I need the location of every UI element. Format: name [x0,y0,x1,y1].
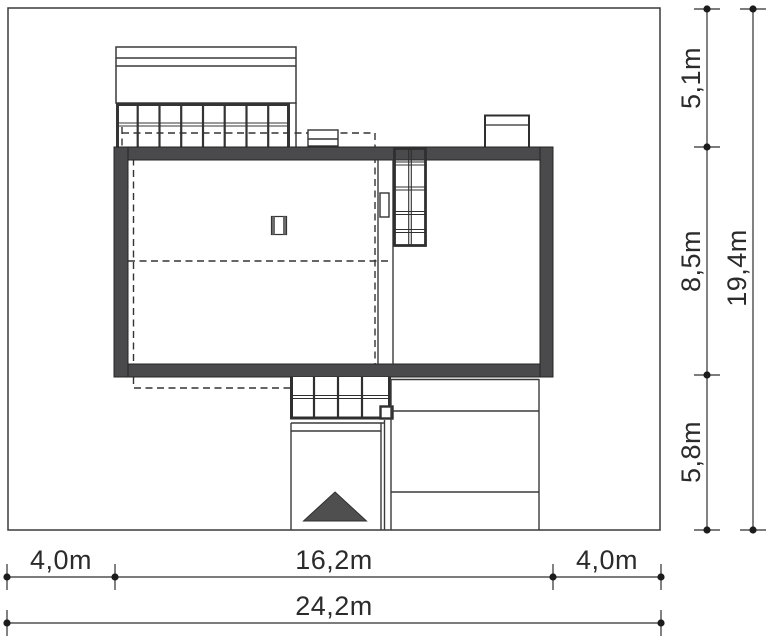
dim-label-right-middle: 8,5m [676,230,706,292]
chimney [485,116,529,150]
entry-pergola-grid [290,377,393,420]
site-plan-canvas: 4,0m 16,2m 4,0m 24,2m 5,1m 8,5m 5,8m 19,… [0,0,770,641]
site-plan-drawing: 4,0m 16,2m 4,0m 24,2m 5,1m 8,5m 5,8m 19,… [0,0,770,641]
interior-chimney [272,217,287,235]
dim-label-bottom-middle: 16,2m [295,545,373,575]
roof-skylight [308,130,338,146]
site-boundary [8,8,660,530]
dim-label-right-bottom: 5,8m [676,421,706,483]
dim-label-bottom-right: 4,0m [576,545,638,575]
dim-label-bottom-left: 4,0m [30,545,92,575]
dim-label-bottom-total: 24,2m [295,591,373,621]
wall-box [380,193,389,217]
dim-label-right-total: 19,4m [722,229,752,307]
dim-label-right-top: 5,1m [676,47,706,109]
